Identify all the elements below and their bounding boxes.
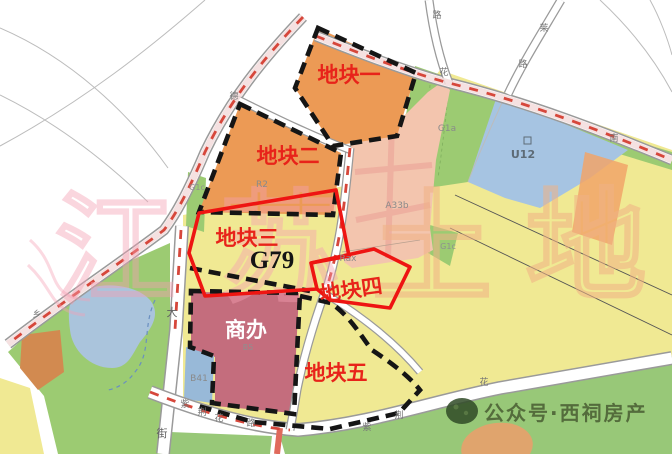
- footer-watermark-text: 公众号·西祠房产: [484, 401, 648, 425]
- zone-label-a33b: A33b: [385, 201, 409, 211]
- zone-label-u12: U12: [511, 148, 535, 161]
- commercial-label: 商办: [225, 318, 267, 342]
- plot2-label: 地块二: [257, 144, 320, 168]
- zone-label-b5: B5: [243, 343, 254, 352]
- zone-label-g1c-east: G1c: [440, 242, 456, 251]
- zone-label-b41: B41: [190, 374, 208, 384]
- road-char-lai-lu: 路: [518, 58, 527, 70]
- road-char-lu-top: 路: [432, 9, 441, 21]
- plot1-label: 地块一: [318, 63, 381, 87]
- watermark-char-1: 江: [55, 182, 175, 321]
- road-char-hua-mid: 花: [439, 66, 448, 78]
- zone-label-r2: R2: [256, 180, 268, 190]
- footer-logo-dot-1: [454, 405, 459, 410]
- road-char-hua: 花: [214, 412, 223, 424]
- road-char-jing: 荆: [197, 406, 206, 418]
- footer-logo-dot-2: [464, 411, 468, 415]
- road-char-jie: 街: [157, 426, 168, 440]
- map-canvas: 江 苏 土 地 R2 G1a G1c G1c U12 A33b Rax B41 …: [0, 0, 672, 454]
- road-char-zi: 紫: [180, 399, 189, 410]
- road-char-de: 德: [229, 90, 238, 102]
- plot3-code-label: G79: [250, 247, 294, 274]
- road-char-da: 大: [167, 305, 178, 319]
- zone-label-g1c-west: G1c: [189, 183, 205, 192]
- road-char-lu: 路: [246, 417, 255, 429]
- road-char-nan: 南: [609, 132, 618, 144]
- footer-logo-icon: [446, 398, 478, 424]
- road-char-jing2: 荆: [394, 409, 403, 421]
- zone-label-rax: Rax: [340, 254, 358, 264]
- zone-label-g1a: G1a: [438, 124, 456, 134]
- road-char-zi2: 紫: [362, 422, 371, 433]
- road-char-hua2: 花: [479, 376, 488, 388]
- planning-map: 江 苏 土 地 R2 G1a G1c G1c U12 A33b Rax B41 …: [0, 0, 672, 454]
- road-char-lai: 莱: [539, 22, 548, 34]
- watermark-char-4: 地: [526, 178, 646, 317]
- plot5-label: 地块五: [305, 361, 368, 385]
- road-char-xiang: 乡: [32, 309, 41, 320]
